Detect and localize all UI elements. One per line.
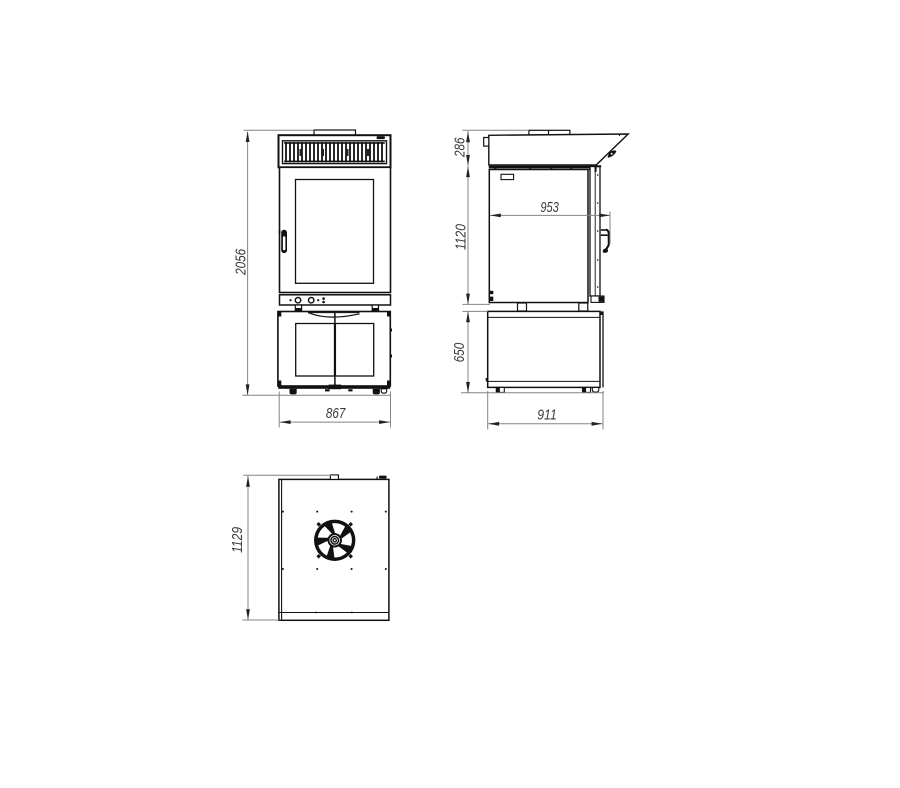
svg-text:1129: 1129 <box>229 526 246 553</box>
svg-text:1120: 1120 <box>452 223 469 250</box>
svg-text:650: 650 <box>451 342 468 362</box>
svg-text:2056: 2056 <box>232 248 249 275</box>
svg-text:286: 286 <box>451 137 468 158</box>
svg-text:911: 911 <box>537 406 557 423</box>
svg-text:953: 953 <box>540 199 559 216</box>
svg-text:867: 867 <box>326 405 346 422</box>
